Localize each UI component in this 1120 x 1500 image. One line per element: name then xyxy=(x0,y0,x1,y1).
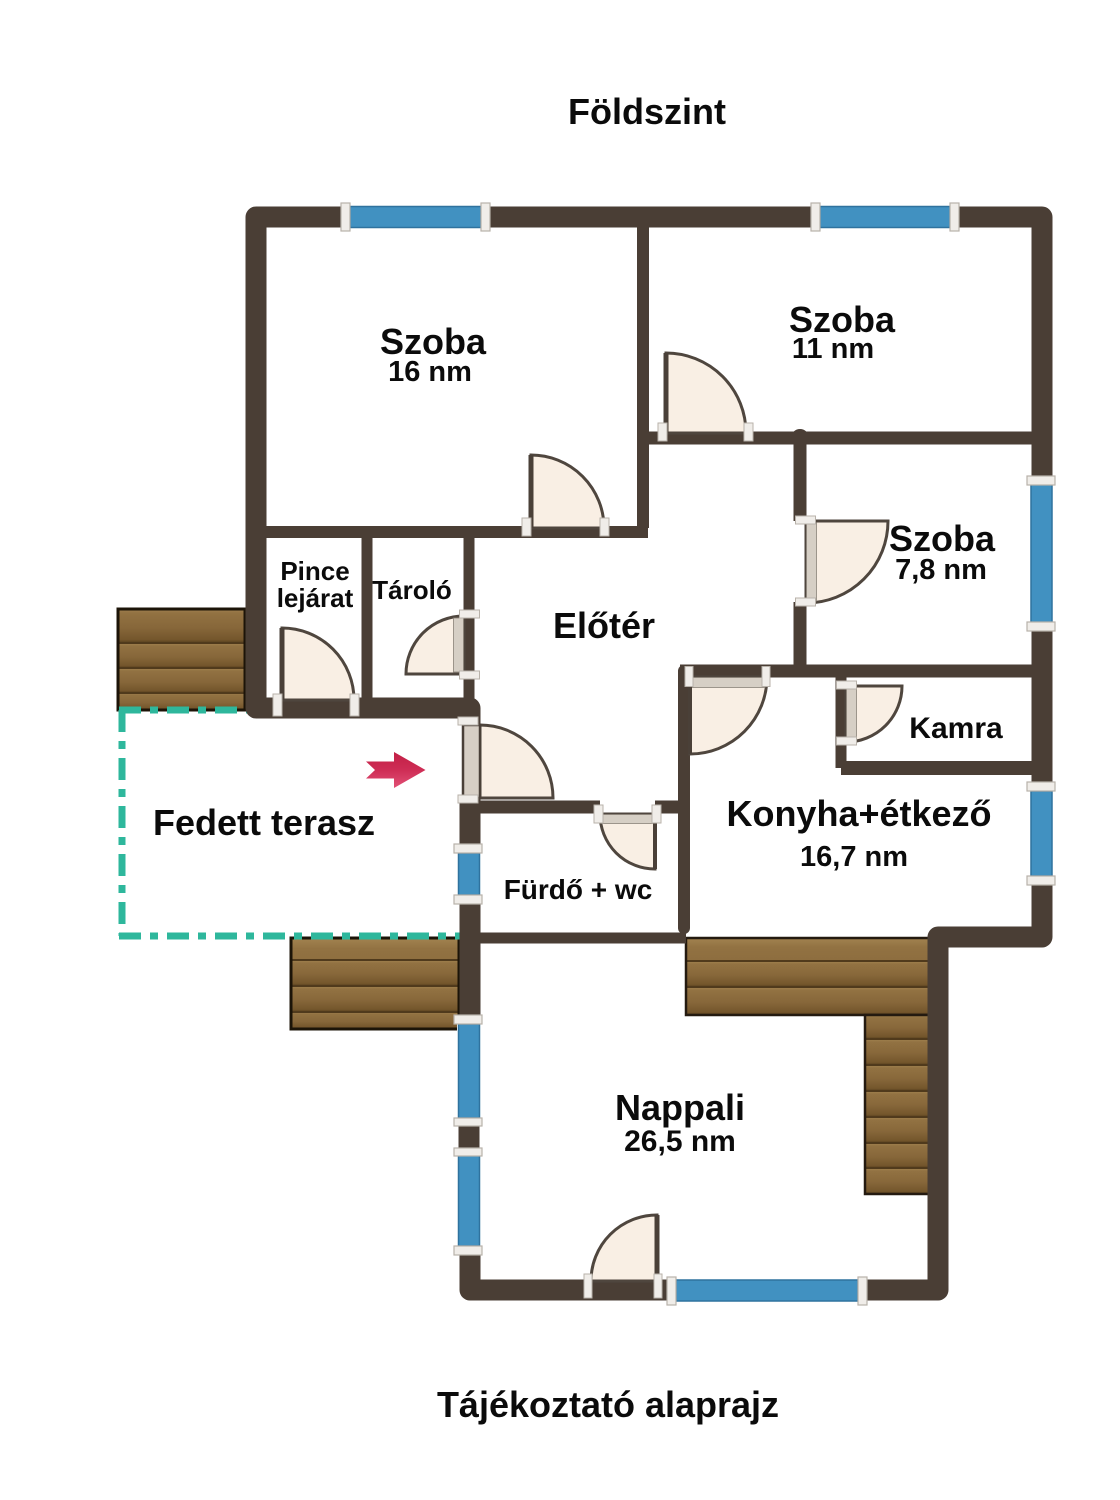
svg-text:Kamra: Kamra xyxy=(909,712,1003,745)
svg-text:Nappali: Nappali xyxy=(615,1087,745,1128)
svg-text:Tájékoztató alaprajz: Tájékoztató alaprajz xyxy=(437,1384,779,1425)
svg-text:Földszint: Földszint xyxy=(568,91,726,132)
svg-text:Konyha+étkező: Konyha+étkező xyxy=(726,793,991,834)
svg-text:Fürdő + wc: Fürdő + wc xyxy=(504,874,653,905)
svg-text:Fedett terasz: Fedett terasz xyxy=(153,802,375,843)
svg-text:26,5 nm: 26,5 nm xyxy=(624,1125,736,1158)
svg-text:Pince: Pince xyxy=(280,556,349,586)
svg-text:7,8 nm: 7,8 nm xyxy=(895,554,987,586)
svg-text:Szoba: Szoba xyxy=(889,518,996,559)
svg-text:16,7 nm: 16,7 nm xyxy=(800,841,908,873)
svg-text:16 nm: 16 nm xyxy=(388,356,472,388)
svg-text:Előtér: Előtér xyxy=(553,605,655,646)
svg-text:lejárat: lejárat xyxy=(277,583,354,613)
svg-text:11 nm: 11 nm xyxy=(792,333,874,365)
svg-text:Tároló: Tároló xyxy=(372,575,451,605)
